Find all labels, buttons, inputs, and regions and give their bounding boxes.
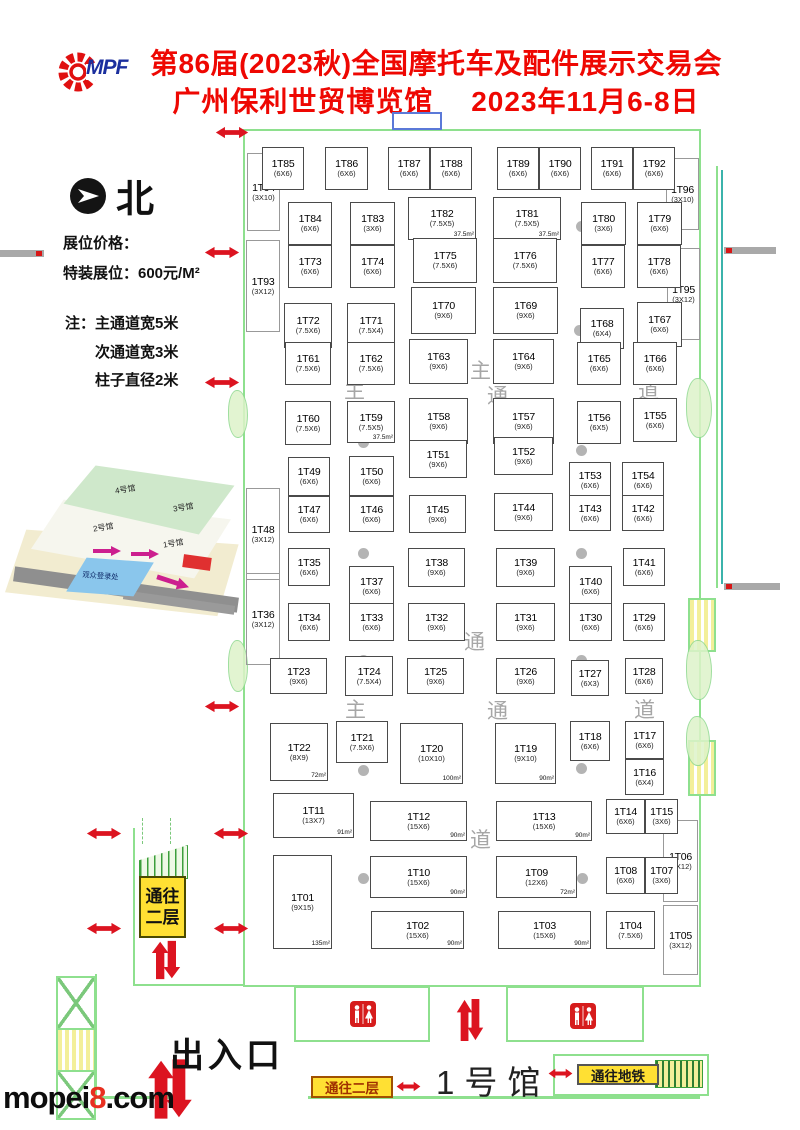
booth-id: 1T18 xyxy=(579,732,602,743)
site-inset-map: 4号馆 3号馆 2号馆 1号馆 观众登录处 xyxy=(5,464,241,620)
booth-id: 1T05 xyxy=(669,931,692,942)
booth-id: 1T46 xyxy=(360,505,383,516)
booth-size: (6X6) xyxy=(551,170,569,178)
booth-id: 1T17 xyxy=(633,731,656,742)
booth-size: (6X6) xyxy=(635,742,653,750)
booth-size: (6X6) xyxy=(645,170,663,178)
booth-size: (8X9) xyxy=(290,754,308,762)
pillar-dot xyxy=(577,873,588,884)
booth-1t20[interactable]: 1T20(10X10)100m² xyxy=(400,723,463,784)
booth-area: 90m² xyxy=(539,776,554,783)
up-down-arrow-icon xyxy=(456,998,484,1042)
booth-id: 1T60 xyxy=(297,414,320,425)
booth-1t74[interactable]: 1T74(6X6) xyxy=(350,245,395,288)
booth-1t63[interactable]: 1T63(9X6) xyxy=(409,339,468,384)
booth-1t50[interactable]: 1T50(6X6) xyxy=(349,456,394,496)
booth-1t26[interactable]: 1T26(9X6) xyxy=(496,658,555,694)
booth-id: 1T22 xyxy=(288,743,311,754)
booth-1t33[interactable]: 1T33(6X6) xyxy=(349,603,394,641)
booth-id: 1T44 xyxy=(512,503,535,514)
booth-1t32[interactable]: 1T32(9X6) xyxy=(408,603,465,641)
booth-1t78[interactable]: 1T78(6X6) xyxy=(637,245,681,288)
booth-1t37[interactable]: 1T37(6X6) xyxy=(349,566,394,606)
booth-area: 37.5m² xyxy=(373,435,393,442)
floorplan-page: MPF 第86届(2023秋)全国摩托车及配件展示交易会 广州保利世贸博览馆 2… xyxy=(0,0,800,1130)
booth-id: 1T34 xyxy=(298,613,321,624)
booth-size: (6X6) xyxy=(581,482,599,490)
plant xyxy=(228,640,248,692)
booth-id: 1T40 xyxy=(579,577,602,588)
wall-line xyxy=(142,818,143,844)
booth-size: (6X6) xyxy=(362,516,380,524)
inset-route-arrow xyxy=(131,549,159,559)
booth-area: 90m² xyxy=(575,833,590,840)
booth-area: 90m² xyxy=(450,833,465,840)
booth-size: (3X12) xyxy=(252,288,275,296)
booth-1t02[interactable]: 1T02(15X6)90m² xyxy=(371,911,464,949)
aisle-label: 道 xyxy=(634,694,655,724)
booth-1t79[interactable]: 1T79(6X6) xyxy=(637,202,682,245)
booth-id: 1T57 xyxy=(512,412,535,423)
booth-area: 135m² xyxy=(312,941,330,948)
plant xyxy=(686,640,712,700)
wall-line xyxy=(170,818,171,844)
booth-size: (6X6) xyxy=(650,268,668,276)
booth-id: 1T09 xyxy=(525,868,548,879)
booth-size: (9X6) xyxy=(427,569,445,577)
hall-1-label: 1号馆 xyxy=(436,1056,550,1104)
booth-size: (6X6) xyxy=(581,624,599,632)
booth-size: (7.5X4) xyxy=(359,327,384,335)
booth-size: (6X6) xyxy=(300,569,318,577)
booth-size: (7.5X6) xyxy=(618,932,643,940)
booth-id: 1T33 xyxy=(360,613,383,624)
booth-id: 1T10 xyxy=(407,868,430,879)
booth-size: (3X6) xyxy=(363,225,381,233)
booth-1t66[interactable]: 1T66(6X6) xyxy=(633,342,677,385)
booth-area: 100m² xyxy=(443,776,461,783)
booth-1t44[interactable]: 1T44(9X6) xyxy=(494,493,553,531)
watermark-text: mopei xyxy=(3,1080,89,1115)
booth-1t42[interactable]: 1T42(6X6) xyxy=(622,495,664,531)
booth-1t73[interactable]: 1T73(6X6) xyxy=(288,245,332,288)
booth-1t18[interactable]: 1T18(6X6) xyxy=(570,721,610,761)
pillar-dot xyxy=(358,873,369,884)
booth-id: 1T23 xyxy=(287,667,310,678)
booth-size: (15X6) xyxy=(533,823,556,831)
inset-route-arrow xyxy=(93,546,121,556)
booth-id: 1T21 xyxy=(351,733,374,744)
booth-1t36[interactable]: 1T36(3X12) xyxy=(246,573,280,665)
booth-1t59[interactable]: 1T59(7.5X5)37.5m² xyxy=(347,401,395,443)
booth-1t41[interactable]: 1T41(6X6) xyxy=(623,548,665,586)
booth-id: 1T35 xyxy=(298,558,321,569)
booth-size: (6X6) xyxy=(362,478,380,486)
booth-size: (9X6) xyxy=(427,624,445,632)
booth-1t65[interactable]: 1T65(6X6) xyxy=(577,342,621,385)
booth-size: (15X6) xyxy=(533,932,556,940)
booth-1t07[interactable]: 1T07(3X6) xyxy=(645,857,678,894)
booth-1t64[interactable]: 1T64(9X6) xyxy=(493,339,554,384)
booth-1t84[interactable]: 1T84(6X6) xyxy=(288,202,332,245)
booth-id: 1T54 xyxy=(632,471,655,482)
booth-1t22[interactable]: 1T22(8X9)72m² xyxy=(270,723,328,781)
booth-1t23[interactable]: 1T23(9X6) xyxy=(270,658,327,694)
booth-size: (6X4) xyxy=(593,330,611,338)
booth-id: 1T55 xyxy=(644,411,667,422)
booth-1t08[interactable]: 1T08(6X6) xyxy=(606,857,645,894)
booth-id: 1T29 xyxy=(633,613,656,624)
double-arrow-icon xyxy=(86,827,122,840)
booth-id: 1T16 xyxy=(633,768,656,779)
escalator-subway xyxy=(655,1060,703,1088)
booth-size: (9X15) xyxy=(291,904,314,912)
booth-1t62[interactable]: 1T62(7.5X6) xyxy=(347,342,395,385)
booth-id: 1T48 xyxy=(252,525,275,536)
booth-1t85[interactable]: 1T85(6X6) xyxy=(262,147,304,190)
pillar-dot xyxy=(358,548,369,559)
booth-1t24[interactable]: 1T24(7.5X4) xyxy=(345,656,393,696)
booth-1t81[interactable]: 1T81(7.5X5)37.5m² xyxy=(493,197,561,240)
booth-1t70[interactable]: 1T70(9X6) xyxy=(411,287,476,334)
double-arrow-icon xyxy=(215,126,249,139)
booth-size: (9X6) xyxy=(429,461,447,469)
booth-id: 1T53 xyxy=(579,471,602,482)
booth-1t14[interactable]: 1T14(6X6) xyxy=(606,799,645,834)
booth-1t12[interactable]: 1T12(15X6)90m² xyxy=(370,801,467,841)
booth-1t16[interactable]: 1T16(6X4) xyxy=(625,759,664,795)
aisle-label: 主 xyxy=(345,694,366,724)
booth-size: (6X6) xyxy=(581,588,599,596)
escalator-to-second-floor xyxy=(139,845,188,879)
booth-1t76[interactable]: 1T76(7.5X6) xyxy=(493,238,557,283)
watermark-text: .com xyxy=(106,1080,174,1115)
booth-1t45[interactable]: 1T45(9X6) xyxy=(409,495,466,533)
booth-size: (6X5) xyxy=(590,424,608,432)
booth-1t60[interactable]: 1T60(7.5X6) xyxy=(285,401,331,445)
booth-size: (6X6) xyxy=(400,170,418,178)
booth-area: 72m² xyxy=(311,773,326,780)
booth-1t47[interactable]: 1T47(6X6) xyxy=(288,496,330,533)
booth-size: (3X12) xyxy=(252,536,275,544)
booth-size: (3X6) xyxy=(594,225,612,233)
wall-line xyxy=(133,984,243,986)
restroom-icon xyxy=(350,1001,376,1027)
booth-size: (7.5X6) xyxy=(350,744,375,752)
booth-id: 1T31 xyxy=(514,613,537,624)
booth-id: 1T52 xyxy=(512,447,535,458)
booth-id: 1T03 xyxy=(533,921,556,932)
booth-id: 1T43 xyxy=(579,504,602,515)
booth-size: (6X6) xyxy=(635,678,653,686)
booth-size: (7.5X5) xyxy=(515,220,540,228)
booth-1t87[interactable]: 1T87(6X6) xyxy=(388,147,430,190)
booth-1t48[interactable]: 1T48(3X12) xyxy=(246,488,280,580)
booth-size: (9X6) xyxy=(514,514,532,522)
booth-1t39[interactable]: 1T39(9X6) xyxy=(496,548,555,587)
wall-line xyxy=(716,166,718,588)
booth-1t56[interactable]: 1T56(6X5) xyxy=(577,401,621,444)
plant xyxy=(686,716,710,766)
booth-size: (7.5X6) xyxy=(433,262,458,270)
booth-size: (3X6) xyxy=(652,818,670,826)
booth-size: (15X6) xyxy=(407,879,430,887)
booth-size: (6X6) xyxy=(362,588,380,596)
pillar-dot xyxy=(576,763,587,774)
road-mark xyxy=(724,583,780,590)
booth-size: (6X6) xyxy=(646,365,664,373)
booth-1t91[interactable]: 1T91(6X6) xyxy=(591,147,633,190)
double-arrow-icon xyxy=(204,246,240,259)
aisle-label: 主 xyxy=(470,355,491,385)
booth-1t67[interactable]: 1T67(6X6) xyxy=(637,302,682,347)
escalator-block xyxy=(56,1028,96,1072)
booth-id: 1T28 xyxy=(633,667,656,678)
booth-area: 90m² xyxy=(450,890,465,897)
booth-1t75[interactable]: 1T75(7.5X6) xyxy=(413,238,477,283)
booth-area: 90m² xyxy=(574,941,589,948)
booth-1t61[interactable]: 1T61(7.5X6) xyxy=(285,342,331,385)
booth-size: (6X6) xyxy=(274,170,292,178)
booth-size: (6X6) xyxy=(362,624,380,632)
booth-size: (7.5X6) xyxy=(296,365,321,373)
entrance-exit-label: 出入口 xyxy=(170,1028,284,1077)
booth-1t43[interactable]: 1T43(6X6) xyxy=(569,495,611,531)
booth-1t30[interactable]: 1T30(6X6) xyxy=(569,603,612,641)
road-mark-tick xyxy=(36,251,42,256)
booth-1t55[interactable]: 1T55(6X6) xyxy=(633,398,677,442)
booth-1t25[interactable]: 1T25(9X6) xyxy=(407,658,464,694)
booth-1t21[interactable]: 1T21(7.5X6) xyxy=(336,721,388,763)
booth-id: 1T26 xyxy=(514,667,537,678)
booth-1t88[interactable]: 1T88(6X6) xyxy=(430,147,472,190)
up-down-arrow-icon xyxy=(151,940,181,980)
road-mark-tick xyxy=(726,248,732,253)
booth-1t53[interactable]: 1T53(6X6) xyxy=(569,462,611,498)
booth-id: 1T51 xyxy=(427,450,450,461)
double-arrow-icon xyxy=(86,922,122,935)
booth-1t77[interactable]: 1T77(6X6) xyxy=(581,245,625,288)
pillar-dot xyxy=(576,445,587,456)
booth-size: (3X6) xyxy=(652,877,670,885)
booth-1t82[interactable]: 1T82(7.5X5)37.5m² xyxy=(408,197,476,240)
sign-text: 通往 xyxy=(146,886,180,907)
booth-size: (9X6) xyxy=(514,423,532,431)
booth-size: (6X6) xyxy=(634,515,652,523)
watermark-accent: 8 xyxy=(89,1080,105,1115)
booth-size: (6X6) xyxy=(634,482,652,490)
booth-1t54[interactable]: 1T54(6X6) xyxy=(622,462,664,498)
booth-size: (7.5X5) xyxy=(430,220,455,228)
wall-line xyxy=(243,129,245,987)
booth-size: (6X6) xyxy=(590,365,608,373)
double-arrow-icon xyxy=(204,700,240,713)
booth-1t27[interactable]: 1T27(6X3) xyxy=(571,660,609,696)
booth-size: (6X6) xyxy=(337,170,355,178)
booth-size: (9X6) xyxy=(516,569,534,577)
sign-to-subway: 通往地铁 xyxy=(577,1064,659,1085)
booth-1t15[interactable]: 1T15(3X6) xyxy=(645,799,678,834)
aisle-label: 道 xyxy=(470,824,491,854)
booth-1t80[interactable]: 1T80(3X6) xyxy=(581,202,626,245)
booth-size: (3X12) xyxy=(669,942,692,950)
booth-size: (7.5X6) xyxy=(359,365,384,373)
booth-size: (3X10) xyxy=(252,194,275,202)
booth-size: (6X6) xyxy=(616,877,634,885)
booth-size: (6X6) xyxy=(650,225,668,233)
booth-size: (9X6) xyxy=(434,312,452,320)
booth-size: (6X6) xyxy=(646,422,664,430)
sign-to-second-floor: 通往 二层 xyxy=(139,876,186,938)
booth-size: (9X6) xyxy=(426,678,444,686)
booth-1t40[interactable]: 1T40(6X6) xyxy=(569,566,612,606)
booth-1t69[interactable]: 1T69(9X6) xyxy=(493,287,558,334)
booth-1t52[interactable]: 1T52(9X6) xyxy=(494,437,553,475)
booth-size: (9X6) xyxy=(514,363,532,371)
sign-text: 二层 xyxy=(146,907,180,928)
booth-1t17[interactable]: 1T17(6X6) xyxy=(625,721,664,759)
booth-size: (12X6) xyxy=(525,879,548,887)
restroom-icon xyxy=(570,1003,596,1029)
aisle-label: 通 xyxy=(487,695,508,725)
wall-line xyxy=(721,170,723,584)
pillar-dot xyxy=(358,765,369,776)
booth-size: (7.5X6) xyxy=(296,425,321,433)
booth-1t49[interactable]: 1T49(6X6) xyxy=(288,457,330,496)
booth-id: 1T45 xyxy=(426,505,449,516)
booth-size: (9X6) xyxy=(516,624,534,632)
wall-niche xyxy=(392,112,442,130)
booth-size: (7.5X6) xyxy=(513,262,538,270)
booth-size: (6X6) xyxy=(581,515,599,523)
inset-registration-label: 观众登录处 xyxy=(82,569,119,583)
booth-1t10[interactable]: 1T10(15X6)90m² xyxy=(370,856,467,898)
booth-size: (6X6) xyxy=(301,268,319,276)
wall-line xyxy=(243,129,701,131)
booth-id: 1T01 xyxy=(291,893,314,904)
double-arrow-icon xyxy=(548,1066,573,1077)
booth-size: (10X10) xyxy=(418,755,445,763)
booth-id: 1T13 xyxy=(533,812,556,823)
booth-1t92[interactable]: 1T92(6X6) xyxy=(633,147,675,190)
booth-id: 1T24 xyxy=(358,667,381,678)
booth-1t13[interactable]: 1T13(15X6)90m² xyxy=(496,801,592,841)
booth-size: (6X4) xyxy=(635,779,653,787)
booth-id: 1T36 xyxy=(252,610,275,621)
sign-to-second-floor-bottom: 通往二层 xyxy=(311,1076,393,1098)
booth-1t51[interactable]: 1T51(9X6) xyxy=(409,440,467,478)
booth-size: (9X6) xyxy=(428,516,446,524)
booth-id: 1T93 xyxy=(252,277,275,288)
booth-id: 1T50 xyxy=(360,467,383,478)
booth-id: 1T30 xyxy=(579,613,602,624)
booth-size: (9X10) xyxy=(514,755,537,763)
pillar-dot xyxy=(576,548,587,559)
booth-1t11[interactable]: 1T11(13X7)91m² xyxy=(273,793,354,838)
double-arrow-icon xyxy=(204,376,240,389)
booth-1t46[interactable]: 1T46(6X6) xyxy=(349,496,394,532)
booth-area: 72m² xyxy=(560,890,575,897)
booth-size: (6X6) xyxy=(594,268,612,276)
booth-1t29[interactable]: 1T29(6X6) xyxy=(623,603,665,641)
aisle-label: 通 xyxy=(464,626,485,656)
booth-1t19[interactable]: 1T19(9X10)90m² xyxy=(495,723,556,784)
booth-size: (6X6) xyxy=(301,225,319,233)
booth-size: (7.5X5) xyxy=(359,424,384,432)
double-arrow-icon xyxy=(396,1079,421,1090)
booth-1t05[interactable]: 1T05(3X12) xyxy=(663,905,698,975)
stair-block xyxy=(56,976,96,1030)
booth-1t93[interactable]: 1T93(3X12) xyxy=(246,240,280,332)
booth-size: (6X6) xyxy=(509,170,527,178)
booth-size: (3X12) xyxy=(252,621,275,629)
booth-size: (6X6) xyxy=(581,743,599,751)
booth-1t89[interactable]: 1T89(6X6) xyxy=(497,147,539,190)
booth-size: (6X6) xyxy=(603,170,621,178)
booth-size: (6X6) xyxy=(442,170,460,178)
booth-size: (13X7) xyxy=(302,817,325,825)
booth-size: (6X6) xyxy=(635,624,653,632)
booth-id: 1T02 xyxy=(406,921,429,932)
booth-1t38[interactable]: 1T38(9X6) xyxy=(408,548,465,587)
booth-1t35[interactable]: 1T35(6X6) xyxy=(288,548,330,586)
double-arrow-icon xyxy=(213,827,249,840)
booth-size: (9X6) xyxy=(429,363,447,371)
booth-size: (6X6) xyxy=(363,268,381,276)
booth-id: 1T42 xyxy=(632,504,655,515)
booth-area: 91m² xyxy=(337,830,352,837)
booth-1t03[interactable]: 1T03(15X6)90m² xyxy=(498,911,591,949)
booth-size: (9X6) xyxy=(289,678,307,686)
booth-1t83[interactable]: 1T83(3X6) xyxy=(350,202,395,245)
plant xyxy=(228,390,248,438)
booth-1t31[interactable]: 1T31(9X6) xyxy=(496,603,555,641)
booth-size: (6X6) xyxy=(616,818,634,826)
booth-id: 1T32 xyxy=(425,613,448,624)
booth-size: (15X6) xyxy=(406,932,429,940)
booth-1t34[interactable]: 1T34(6X6) xyxy=(288,603,330,641)
booth-id: 1T41 xyxy=(633,558,656,569)
booth-size: (9X6) xyxy=(516,678,534,686)
booth-1t28[interactable]: 1T28(6X6) xyxy=(625,658,663,694)
booth-id: 1T59 xyxy=(360,413,383,424)
plant xyxy=(686,378,712,438)
booth-size: (6X3) xyxy=(581,680,599,688)
booth-size: (6X6) xyxy=(635,569,653,577)
booth-size: (6X6) xyxy=(300,624,318,632)
booth-1t86[interactable]: 1T86(6X6) xyxy=(325,147,368,190)
booth-area: 90m² xyxy=(447,941,462,948)
road-mark-tick xyxy=(726,584,732,589)
booth-id: 1T27 xyxy=(579,669,602,680)
booth-id: 1T04 xyxy=(619,921,642,932)
booth-1t04[interactable]: 1T04(7.5X6) xyxy=(606,911,655,949)
watermark-link: mopei8.com xyxy=(3,1080,174,1116)
booth-size: (15X6) xyxy=(407,823,430,831)
booth-1t58[interactable]: 1T58(9X6) xyxy=(409,398,468,444)
wall-line xyxy=(133,828,135,986)
booth-size: (9X6) xyxy=(429,423,447,431)
booth-size: (6X6) xyxy=(300,516,318,524)
booth-1t90[interactable]: 1T90(6X6) xyxy=(539,147,581,190)
double-arrow-icon xyxy=(213,922,249,935)
booth-size: (7.5X6) xyxy=(296,327,321,335)
booth-size: (6X6) xyxy=(650,326,668,334)
booth-1t01[interactable]: 1T01(9X15)135m² xyxy=(273,855,332,949)
booth-size: (7.5X4) xyxy=(357,678,382,686)
booth-1t09[interactable]: 1T09(12X6)72m² xyxy=(496,856,577,898)
booth-size: (9X6) xyxy=(516,312,534,320)
